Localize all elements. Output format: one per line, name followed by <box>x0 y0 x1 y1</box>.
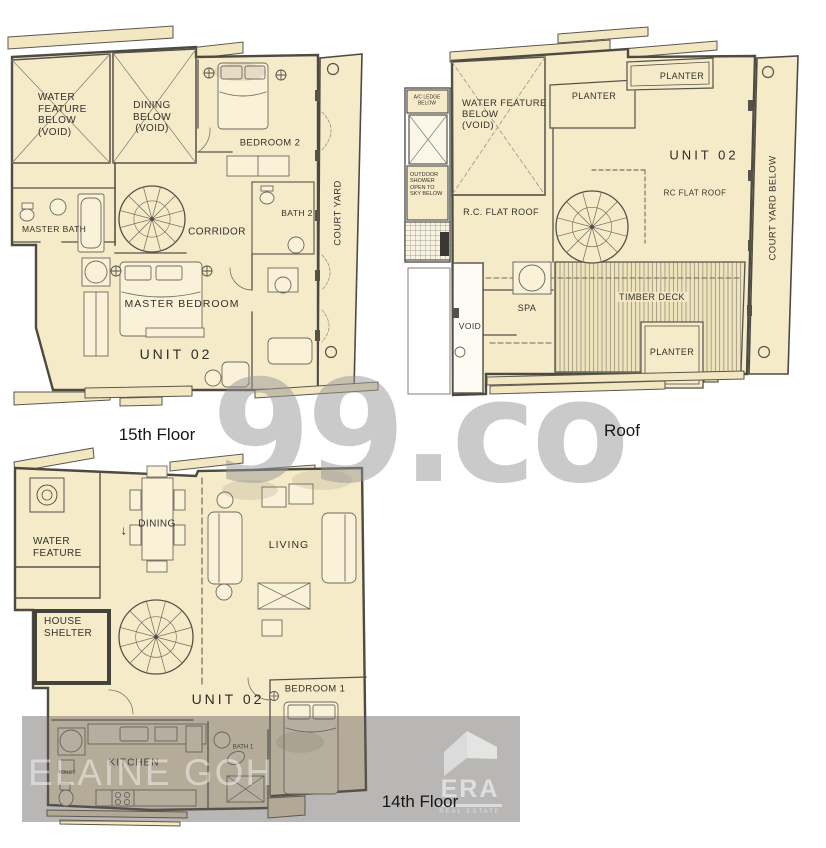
label-court-yard-below: COURT YARD BELOW <box>769 156 780 261</box>
label-bedroom1: BEDROOM 1 <box>285 685 346 696</box>
label-master-bath: MASTER BATH <box>22 225 86 235</box>
label-corridor: CORRIDOR <box>188 226 246 238</box>
label-rc-flat-roof-right: RC FLAT ROOF <box>664 188 727 197</box>
label-timber-deck: TIMBER DECK <box>616 292 688 302</box>
label-void: VOID <box>459 322 481 332</box>
label-water-feature-15: WATER FEATURE BELOW (VOID) <box>38 92 87 138</box>
caption-15th-floor: 15th Floor <box>119 425 196 445</box>
label-unit02-roof: UNIT 02 <box>669 149 738 164</box>
caption-14th-floor: 14th Floor <box>382 792 459 812</box>
label-water-feature-14: WATER FEATURE <box>33 536 82 559</box>
label-timber-deck-text: TIMBER DECK <box>616 292 688 302</box>
spa-fixtures <box>513 262 551 294</box>
label-dining-below-15: DINING BELOW (VOID) <box>133 100 171 135</box>
label-rc-flat-roof-left: R.C. FLAT ROOF <box>463 207 539 217</box>
label-planter-bottom: PLANTER <box>650 347 694 357</box>
label-water-feature-roof: WATER FEATURE BELOW (VOID) <box>462 99 547 132</box>
label-unit02-14: UNIT 02 <box>192 691 265 707</box>
label-unit02-15: UNIT 02 <box>140 346 213 362</box>
era-house-icon <box>434 726 506 778</box>
label-outdoor-shower: OUTDOOR SHOWER OPEN TO SKY BELOW <box>410 172 442 197</box>
spiral-stair-15 <box>119 186 185 252</box>
scan-smudge <box>214 63 266 81</box>
label-dining: DINING <box>138 518 175 530</box>
watermark-99co: 99.co <box>212 362 625 504</box>
watermark-agent-name: ELAINE GOH <box>28 752 274 794</box>
spiral-stair-14 <box>119 600 193 674</box>
label-master-bedroom: MASTER BEDROOM <box>125 298 240 310</box>
label-bedroom2: BEDROOM 2 <box>240 139 301 150</box>
stair-direction-arrow: ↓ <box>121 524 128 539</box>
spiral-stair-roof <box>556 191 628 263</box>
label-court-yard-15: COURT YARD <box>334 180 345 246</box>
floorplan-sheet: WATER FEATURE BELOW (VOID) DINING BELOW … <box>0 0 826 848</box>
label-living: LIVING <box>269 539 309 551</box>
caption-roof: Roof <box>604 421 640 441</box>
label-planter-right: PLANTER <box>660 71 704 81</box>
label-bath2: BATH 2 <box>281 209 313 219</box>
service-column-roof <box>405 88 450 394</box>
utility-column-15 <box>82 258 110 356</box>
label-planter-top: PLANTER <box>572 91 616 101</box>
label-house-shelter: HOUSE SHELTER <box>44 616 92 639</box>
label-spa: SPA <box>518 303 537 313</box>
label-ac-ledge: A/C LEDGE BELOW <box>414 95 441 107</box>
